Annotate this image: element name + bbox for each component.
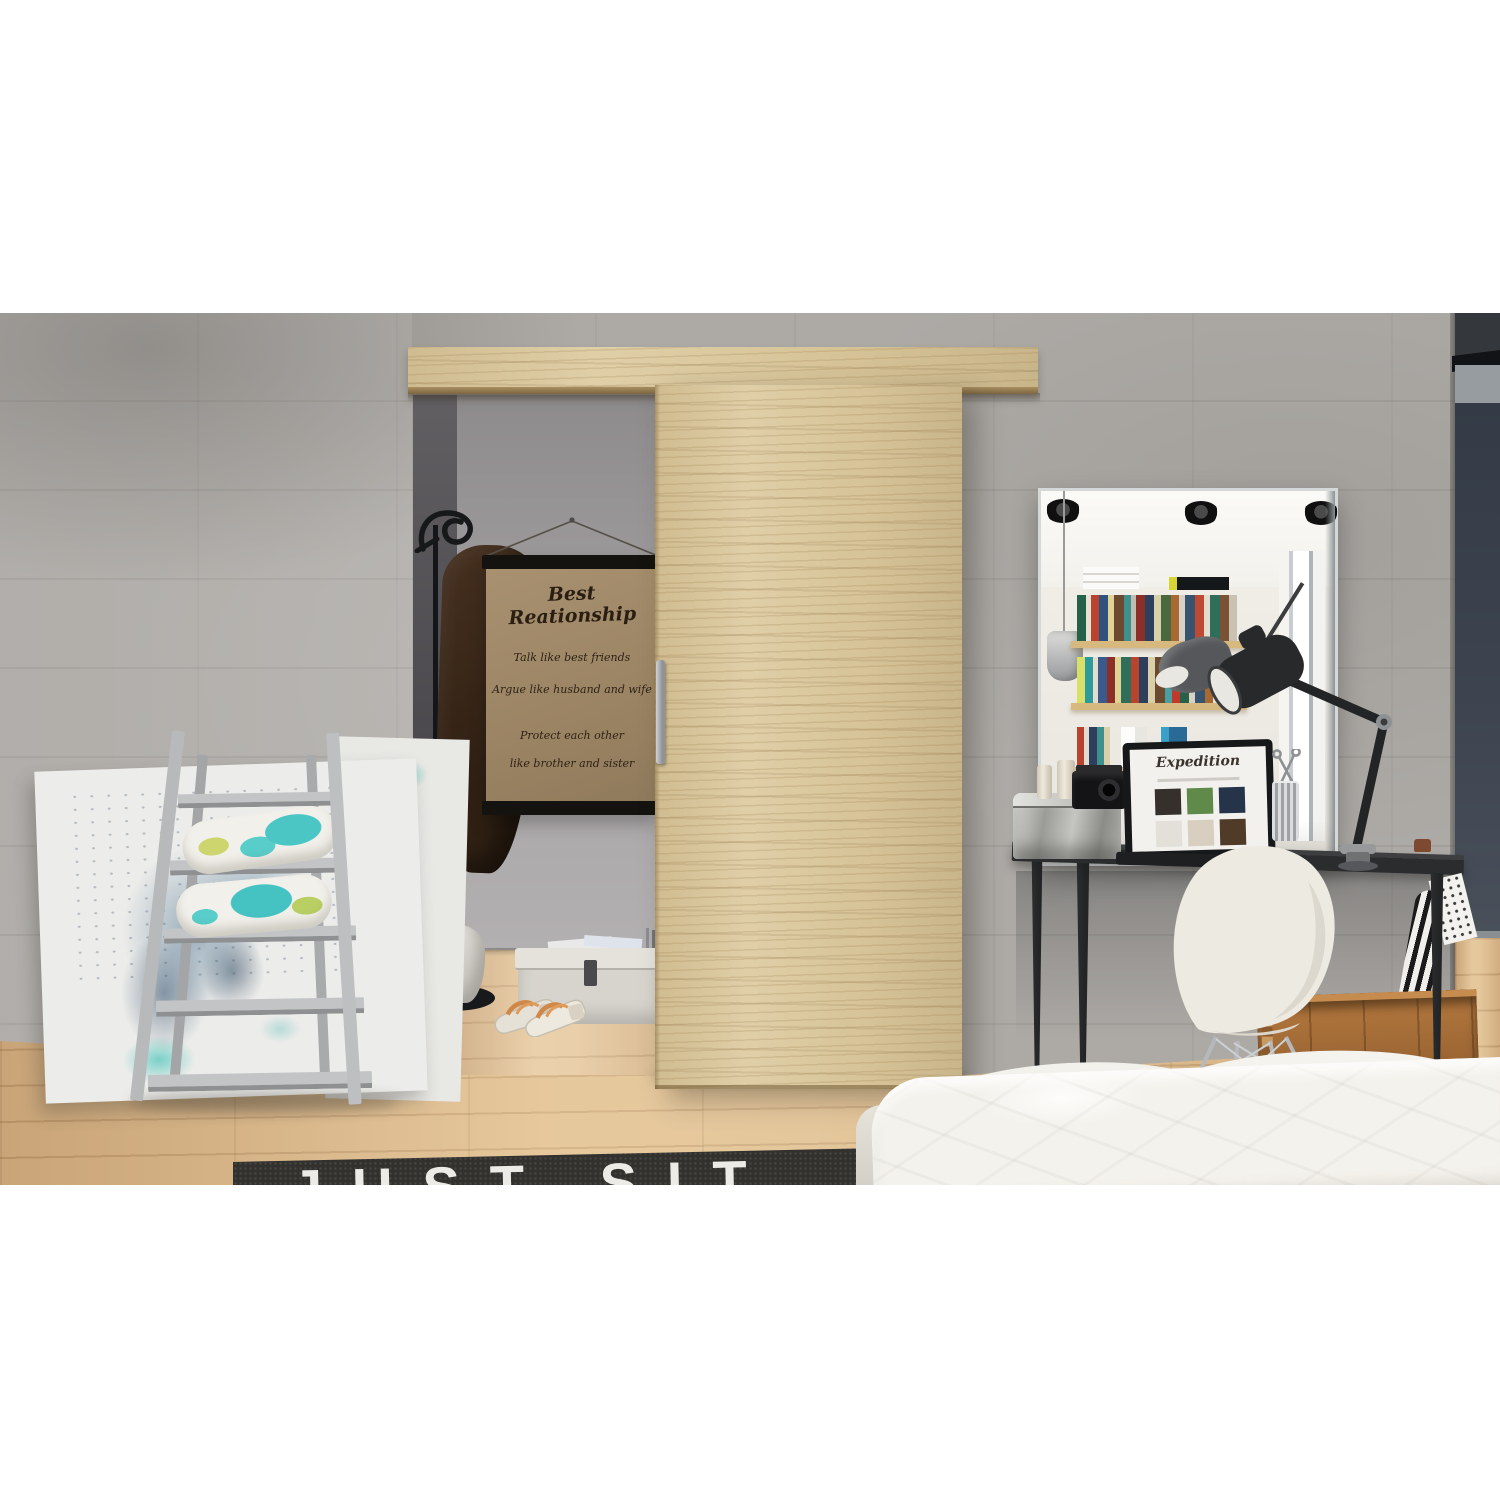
room-photo: Best Reationship Talk like best friends … bbox=[0, 313, 1500, 1185]
sandals bbox=[488, 985, 588, 1037]
poster-line: like brother and sister bbox=[486, 757, 658, 770]
chest-latch bbox=[584, 960, 597, 986]
pendant-cord bbox=[1063, 491, 1065, 633]
bed-mattress bbox=[870, 1057, 1500, 1185]
ladder-shelf bbox=[120, 731, 400, 1109]
book-stack bbox=[1083, 567, 1139, 589]
ladder-shelf-board bbox=[148, 1071, 372, 1092]
vintage-camera bbox=[1072, 771, 1126, 809]
sliding-door bbox=[655, 385, 962, 1089]
spotlight-icon bbox=[1183, 501, 1219, 525]
wall-poster: Best Reationship Talk like best friends … bbox=[486, 555, 658, 815]
poster-line: Talk like best friends bbox=[486, 651, 658, 664]
far-room-upper-wall bbox=[1455, 365, 1500, 407]
poster-frame-bottom bbox=[482, 801, 662, 815]
poster-frame-top bbox=[482, 555, 662, 569]
poster-hanging-string bbox=[484, 516, 660, 558]
ladder-shelf-board bbox=[156, 997, 364, 1017]
thread-spool bbox=[1037, 765, 1052, 799]
page-canvas: Best Reationship Talk like best friends … bbox=[0, 0, 1500, 1500]
door-handle bbox=[656, 660, 665, 764]
poster-line: Argue like husband and wife bbox=[486, 683, 658, 696]
dark-book bbox=[1169, 577, 1229, 590]
poster-title: Best Reationship bbox=[485, 580, 658, 630]
ladder-front-rail bbox=[326, 733, 362, 1105]
camera-lens-icon bbox=[1098, 779, 1120, 801]
poster-line: Protect each other bbox=[486, 729, 658, 742]
camera-top-plate bbox=[1076, 765, 1122, 773]
chest-pens bbox=[646, 928, 649, 948]
